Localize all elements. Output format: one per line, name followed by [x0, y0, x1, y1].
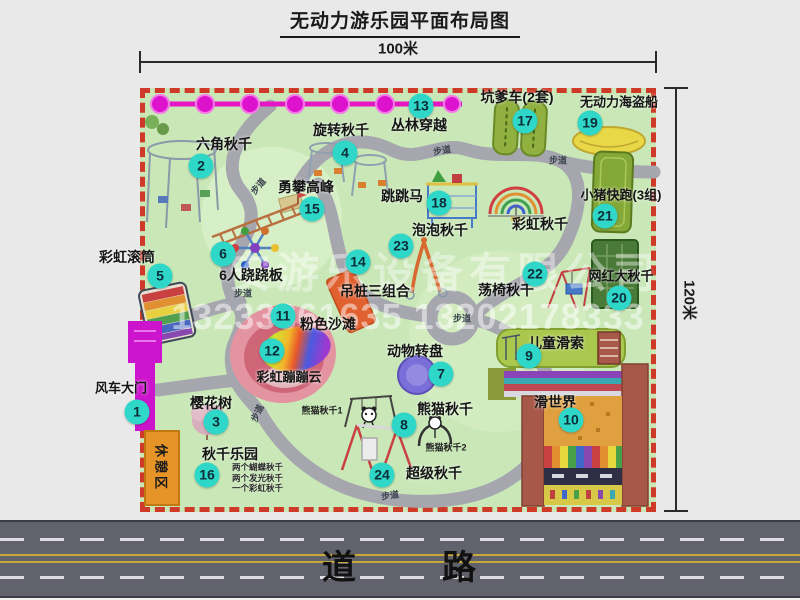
swing-park-note: 两个发光秋千 [232, 473, 283, 484]
label-rotating-swing: 旋转秋千 [313, 120, 369, 140]
label-bubble-swing: 泡泡秋千 [412, 220, 468, 240]
label-seesaw: 6人跷跷板 [219, 265, 283, 285]
dimension-height-line [675, 88, 677, 512]
label-hexagon-swing: 六角秋千 [196, 134, 252, 154]
road: 道路 [0, 520, 800, 598]
label-windmill-gate: 风车大门 [95, 378, 147, 397]
label-panda-swing-2: 熊猫秋千2 [425, 441, 466, 454]
dimension-height-tick-top [664, 87, 688, 89]
dimension-height-label: 120米 [680, 280, 701, 320]
dimension-width-label: 100米 [378, 38, 418, 59]
label-panda-swing-1: 熊猫秋千1 [301, 404, 342, 417]
badge-9: 9 [517, 344, 542, 369]
label-pit-cart: 坑爹车(2套) [480, 87, 553, 107]
label-jumping-horse: 跳跳马 [381, 186, 423, 206]
badge-3: 3 [204, 410, 229, 435]
badge-13: 13 [409, 94, 434, 119]
badge-21: 21 [593, 204, 618, 229]
badge-17: 17 [513, 109, 538, 134]
page-title: 无动力游乐园平面布局图 [280, 6, 520, 38]
dimension-height-tick-bottom [664, 510, 688, 512]
badge-24: 24 [370, 463, 395, 488]
dimension-width-tick-left [139, 51, 141, 73]
swing-park-notes: 两个蝴蝶秋千 两个发光秋千 一个彩虹秋千 [232, 462, 283, 494]
badge-8: 8 [392, 413, 417, 438]
path-label: 步道 [234, 287, 252, 300]
swing-park-note: 一个彩虹秋千 [232, 483, 283, 494]
dimension-width-tick-right [655, 51, 657, 73]
label-pink-beach: 粉色沙滩 [300, 314, 356, 334]
badge-16: 16 [195, 463, 220, 488]
label-super-swing: 超级秋千 [406, 463, 462, 483]
label-animal-carousel: 动物转盘 [387, 341, 443, 361]
dimension-width-line [140, 61, 656, 63]
swing-park-note: 两个蝴蝶秋千 [232, 462, 283, 473]
badge-11: 11 [271, 304, 296, 329]
badge-19: 19 [578, 111, 603, 136]
badge-10: 10 [559, 408, 584, 433]
badge-23: 23 [389, 234, 414, 259]
badge-5: 5 [148, 264, 173, 289]
label-bounce-cloud: 彩虹蹦蹦云 [256, 367, 321, 386]
label-hanging-pile: 吊桩三组合 [340, 281, 410, 301]
badge-4: 4 [333, 141, 358, 166]
badge-12: 12 [260, 339, 285, 364]
label-rainbow-swing: 彩虹秋千 [512, 214, 568, 234]
watermark-phone: 13233861635 13202178333 [171, 296, 644, 338]
path-label: 步道 [453, 312, 471, 325]
label-climbing-peak: 勇攀高峰 [278, 177, 334, 197]
label-big-swing: 网红大秋千 [588, 266, 653, 285]
badge-20: 20 [607, 286, 632, 311]
badge-2: 2 [189, 154, 214, 179]
road-label: 道路 [322, 540, 562, 589]
path-label: 步道 [380, 487, 400, 502]
badge-7: 7 [429, 362, 454, 387]
label-panda-swing: 熊猫秋千 [417, 399, 473, 419]
label-piggy-run: 小猪快跑(3组) [581, 185, 662, 204]
badge-14: 14 [346, 250, 371, 275]
path-label: 步道 [549, 154, 567, 167]
label-rest-area: 休憩区 [153, 444, 172, 492]
badge-22: 22 [523, 262, 548, 287]
label-swing-park: 秋千乐园 [202, 444, 258, 464]
badge-18: 18 [427, 191, 452, 216]
badge-1: 1 [125, 400, 150, 425]
badge-6: 6 [211, 242, 236, 267]
label-pirate-ship: 无动力海盗船 [580, 92, 658, 111]
badge-15: 15 [300, 197, 325, 222]
label-rainbow-roller: 彩虹滚筒 [99, 247, 155, 267]
